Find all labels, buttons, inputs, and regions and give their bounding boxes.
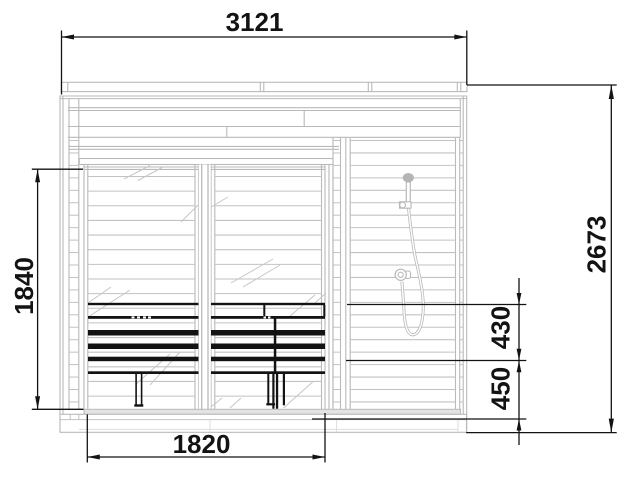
svg-text:3121: 3121	[226, 7, 284, 37]
svg-text:450: 450	[486, 367, 516, 410]
svg-text:430: 430	[486, 306, 516, 349]
svg-text:2673: 2673	[582, 216, 612, 274]
svg-text:1840: 1840	[9, 257, 39, 315]
svg-text:1820: 1820	[173, 429, 231, 459]
